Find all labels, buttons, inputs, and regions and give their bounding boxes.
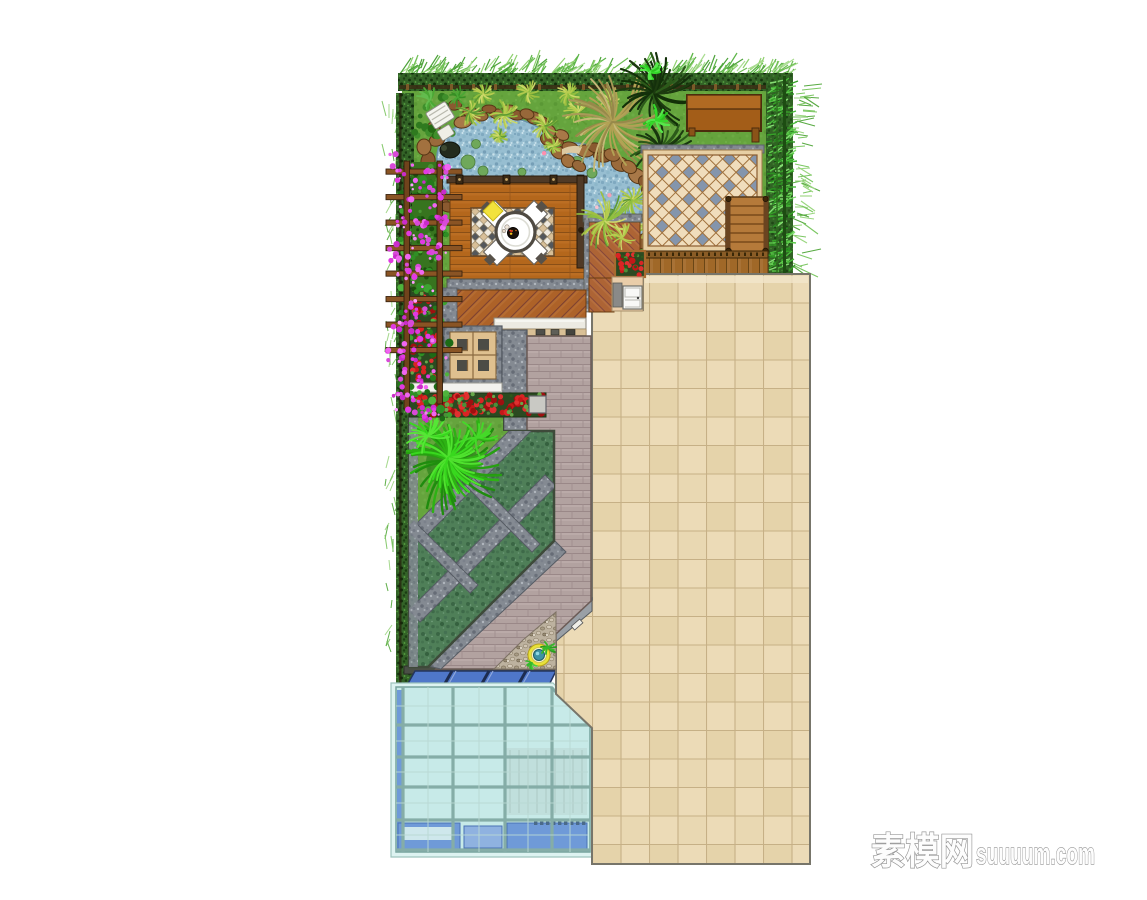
svg-text:suuuum.com: suuuum.com <box>976 836 1095 871</box>
svg-text:素模网: 素模网 <box>871 831 974 872</box>
